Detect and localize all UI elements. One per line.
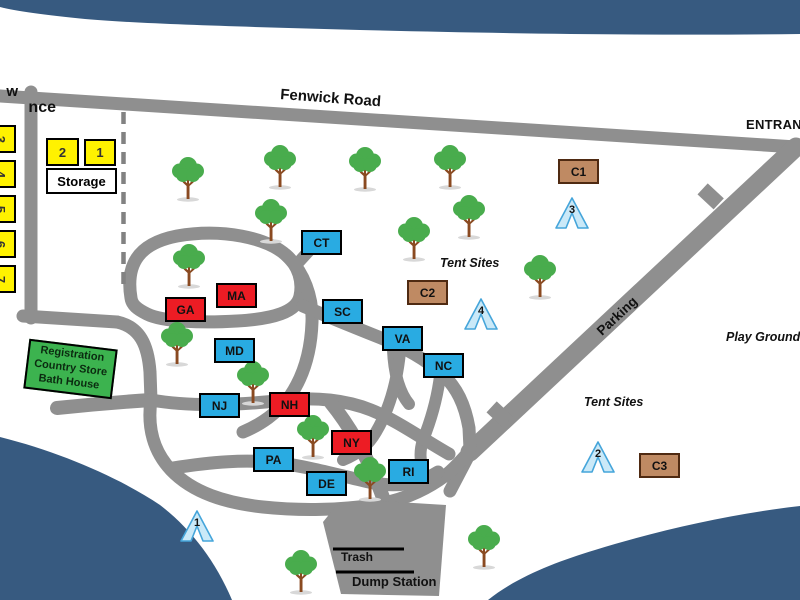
edge-clipped-label-top: w [0,83,18,100]
cabin-label: NC [435,359,452,373]
edge-site-4: 4 [0,160,16,188]
tree-icon [468,525,500,570]
tree-icon [398,217,430,262]
cabin-label: VA [395,332,411,346]
cabin-PA: PA [253,447,294,472]
tree-icon [173,244,205,289]
site-number: 1 [96,145,103,160]
tent-number: 2 [595,448,601,460]
tent-site-4: 4 [464,298,498,330]
tree-icon [349,147,381,192]
site-number: 6 [0,240,8,247]
cabin-CT: CT [301,230,342,255]
campground-map: Fenwick Road ENTRANCE Parking Tent Sites… [0,0,800,600]
cabin-NH: NH [269,392,310,417]
cabin-GA: GA [165,297,206,322]
site-number: 2 [59,145,66,160]
cabin-label: MA [227,289,246,303]
upper-loop-road [130,233,301,322]
edge-clipped-label-bottom: nce [0,99,56,117]
cabin-C3: C3 [639,453,680,478]
site-number: 5 [0,205,8,212]
cabin-label: NJ [212,399,227,413]
site-number: 3 [0,135,8,142]
cabin-label: SC [334,305,351,319]
roads [0,92,796,512]
site-number: 4 [0,170,8,177]
edge-site-3: 3 [0,125,16,153]
tent-number: 1 [194,517,200,529]
tent-site-3: 3 [555,197,589,229]
cabin-MA: MA [216,283,257,308]
cabin-label: C1 [571,165,586,179]
trash-label: Trash [341,550,373,564]
cabin-label: C3 [652,459,667,473]
lake-bottom-right [488,506,800,600]
tent-sites-upper-label: Tent Sites [440,256,499,270]
cabin-label: NH [281,398,298,412]
river-top [0,0,800,35]
storage-site-1: 1 [84,139,116,166]
tree-icon [297,415,329,460]
storage-building: Storage [46,168,117,194]
cabin-label: NY [343,436,360,450]
registration-road [57,400,151,408]
cabin-NY: NY [331,430,372,455]
fenwick-road [0,96,796,147]
cabin-label: DE [318,477,335,491]
tent-sites-lower-label: Tent Sites [584,395,643,409]
cabin-label: RI [403,465,415,479]
tree-icon [161,322,193,367]
tree-icon [264,145,296,190]
edge-site-6: 6 [0,230,16,258]
tree-icon [524,255,556,300]
site-number: 7 [0,275,8,282]
left-curve-road [117,322,151,400]
registration-building: Registration Country Store Bath House [23,339,117,399]
cabin-VA: VA [382,326,423,351]
cabin-MD: MD [214,338,255,363]
tent-number: 4 [478,305,484,317]
tree-icon [453,195,485,240]
cabin-SC: SC [322,299,363,324]
tree-icon [285,550,317,595]
cabin-RI: RI [388,459,429,484]
storage-site-2: 2 [46,138,79,166]
cabin-label: C2 [420,286,435,300]
cabin-label: GA [177,303,195,317]
play-ground-label: Play Ground [726,330,800,344]
tent-site-2: 2 [581,441,615,473]
map-canvas [0,0,800,600]
cabin-label: MD [225,344,244,358]
dump-station-label: Dump Station [352,574,437,589]
cabin-NC: NC [423,353,464,378]
tent-site-1: 1 [180,510,214,542]
edge-site-5: 5 [0,195,16,223]
cabin-C2: C2 [407,280,448,305]
cabin-C1: C1 [558,159,599,184]
edge-site-7: 7 [0,265,16,293]
tent-number: 3 [569,204,575,216]
entrance-label: ENTRANCE [746,117,800,132]
left-cross-road [23,316,117,322]
cabin-label: PA [266,453,282,467]
cabin-NJ: NJ [199,393,240,418]
tree-icon [172,157,204,202]
cabin-label: CT [314,236,330,250]
cabin-DE: DE [306,471,347,496]
tree-icon [434,145,466,190]
